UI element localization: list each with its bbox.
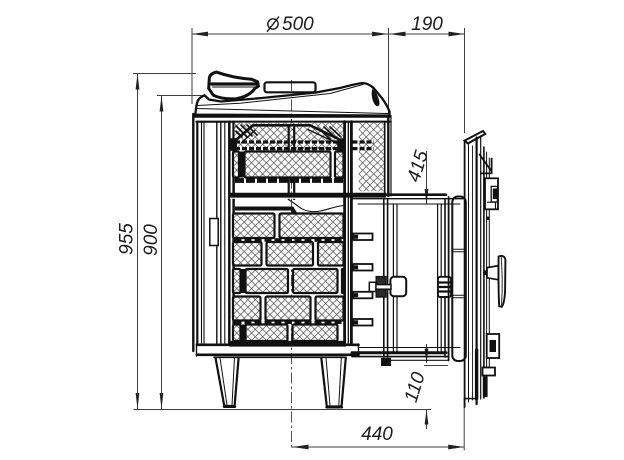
svg-text:190: 190 — [411, 14, 443, 35]
svg-text:500: 500 — [282, 14, 314, 35]
svg-text:900: 900 — [141, 224, 162, 256]
svg-text:440: 440 — [361, 424, 393, 445]
svg-text:955: 955 — [117, 223, 138, 255]
